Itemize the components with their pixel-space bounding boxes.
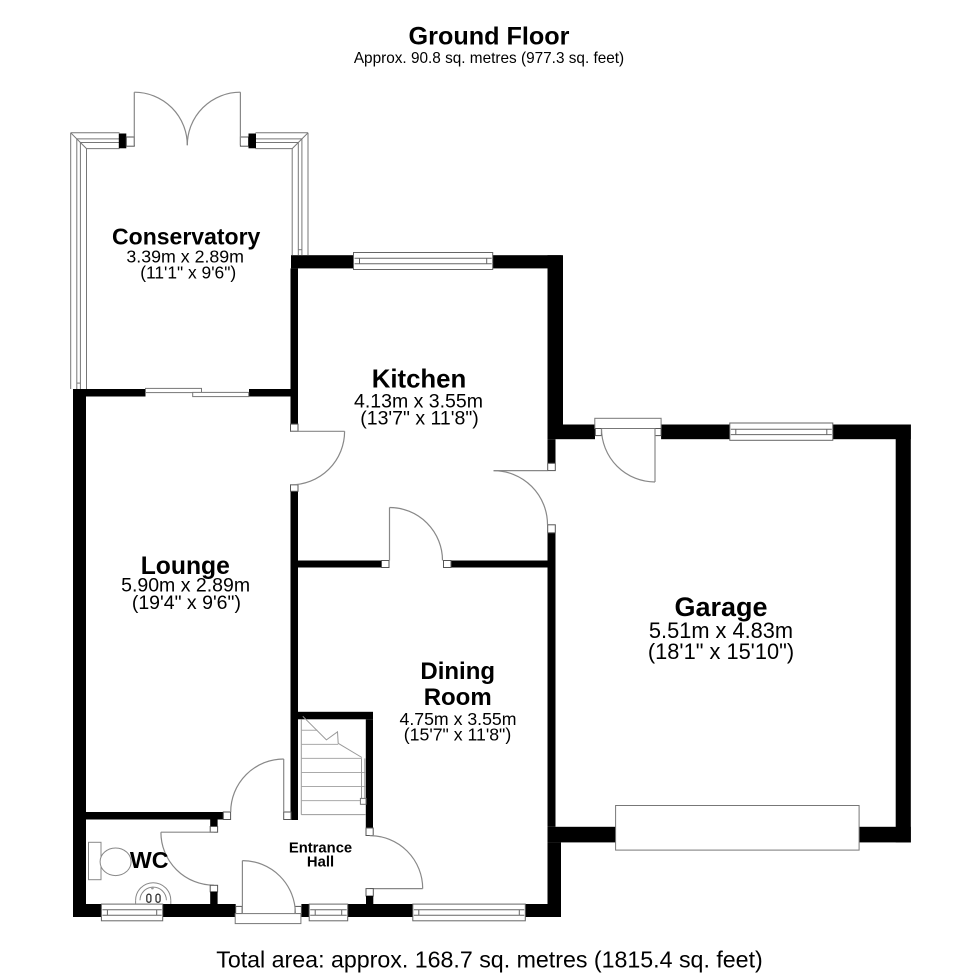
svg-text:Dining: Dining xyxy=(420,658,495,685)
svg-text:(13'7" x 11'8"): (13'7" x 11'8") xyxy=(360,408,479,430)
svg-text:(15'7" x 11'8"): (15'7" x 11'8") xyxy=(404,724,511,744)
svg-text:Conservatory: Conservatory xyxy=(112,224,260,250)
svg-text:(11'1" x 9'6"): (11'1" x 9'6") xyxy=(140,263,236,283)
svg-text:Kitchen: Kitchen xyxy=(372,366,467,394)
svg-text:Approx. 90.8 sq. metres (977.3: Approx. 90.8 sq. metres (977.3 sq. feet) xyxy=(354,50,624,67)
svg-text:(19'4" x 9'6"): (19'4" x 9'6") xyxy=(132,592,241,614)
svg-text:Ground Floor: Ground Floor xyxy=(409,22,570,50)
svg-text:WC: WC xyxy=(130,847,169,873)
svg-text:Room: Room xyxy=(424,684,492,711)
svg-text:Total area: approx. 168.7 sq.: Total area: approx. 168.7 sq. metres (18… xyxy=(216,947,763,973)
svg-text:Hall: Hall xyxy=(307,854,334,870)
svg-text:(18'1" x 15'10"): (18'1" x 15'10") xyxy=(648,639,794,664)
